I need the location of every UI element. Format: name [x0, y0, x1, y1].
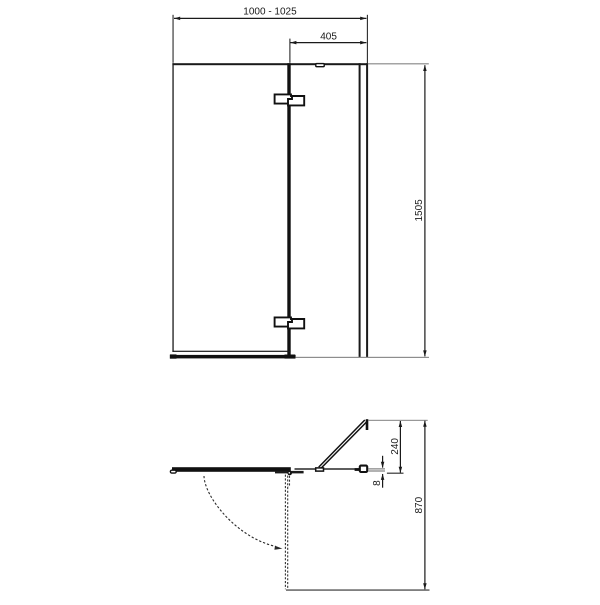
svg-text:1505: 1505: [414, 199, 425, 222]
svg-text:1000 - 1025: 1000 - 1025: [243, 7, 297, 18]
svg-text:405: 405: [320, 31, 337, 42]
svg-text:240: 240: [390, 438, 401, 455]
svg-text:8: 8: [372, 480, 383, 486]
svg-text:870: 870: [414, 496, 425, 513]
